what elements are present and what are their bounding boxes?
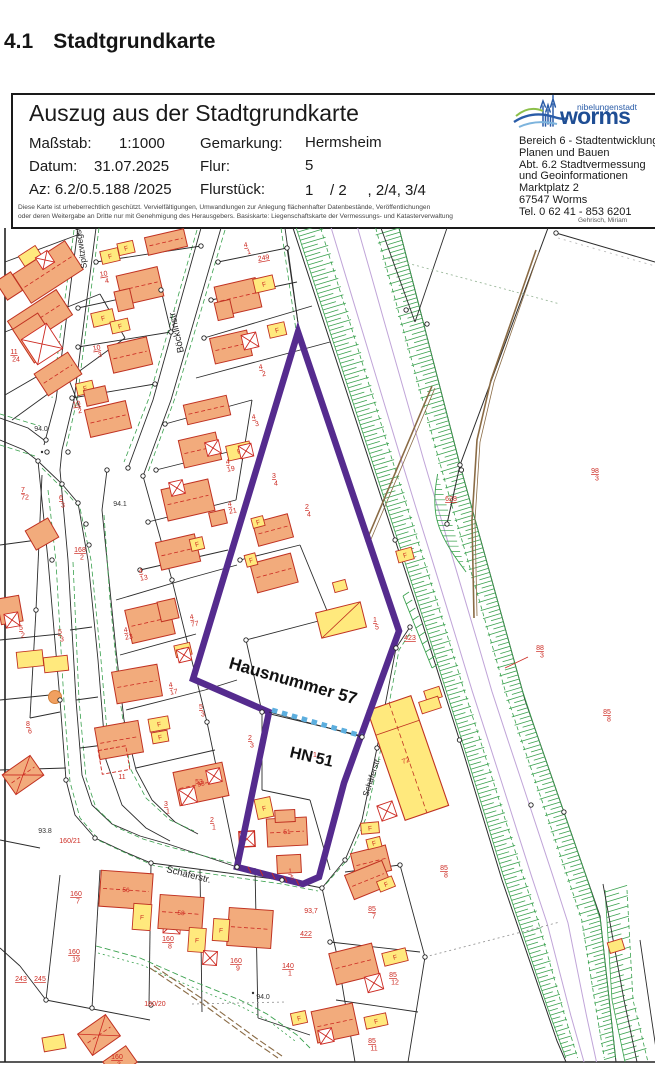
svg-text:160: 160 (162, 936, 174, 943)
svg-text:3: 3 (540, 653, 544, 660)
svg-text:8: 8 (26, 721, 30, 728)
svg-text:3: 3 (60, 637, 64, 644)
svg-text:3: 3 (272, 473, 276, 480)
svg-text:77: 77 (191, 620, 200, 628)
svg-text:160: 160 (230, 958, 242, 965)
svg-text:1: 1 (212, 825, 216, 832)
svg-text:160: 160 (70, 891, 82, 898)
svg-text:23: 23 (125, 633, 134, 641)
svg-text:1: 1 (246, 249, 251, 257)
svg-text:4: 4 (123, 627, 128, 635)
svg-text:3: 3 (164, 801, 168, 808)
svg-text:6: 6 (59, 495, 63, 502)
svg-text:9: 9 (236, 966, 240, 973)
svg-text:4: 4 (243, 242, 248, 250)
svg-text:249: 249 (257, 254, 270, 263)
svg-text:21: 21 (229, 507, 238, 515)
svg-text:160/21: 160/21 (59, 838, 81, 845)
svg-text:4: 4 (189, 614, 194, 622)
svg-text:3: 3 (201, 712, 205, 719)
svg-text:3: 3 (254, 421, 259, 429)
svg-text:11: 11 (370, 1046, 377, 1053)
svg-text:72: 72 (21, 495, 29, 502)
svg-text:F: F (368, 825, 373, 832)
svg-text:628: 628 (445, 496, 457, 503)
svg-text:4: 4 (168, 682, 173, 690)
svg-text:93.8: 93.8 (38, 828, 52, 835)
svg-text:140: 140 (282, 963, 294, 970)
svg-text:4: 4 (251, 414, 256, 422)
svg-text:8: 8 (607, 717, 611, 724)
svg-text:160: 160 (111, 1054, 123, 1061)
svg-text:4: 4 (104, 278, 109, 286)
svg-text:85: 85 (368, 906, 376, 913)
svg-text:56: 56 (122, 887, 130, 895)
svg-text:5: 5 (199, 704, 203, 711)
svg-text:51: 51 (283, 829, 291, 836)
svg-text:2: 2 (77, 408, 82, 416)
svg-text:3: 3 (595, 476, 599, 483)
svg-text:1: 1 (373, 617, 377, 624)
svg-text:98: 98 (591, 468, 599, 475)
svg-text:85: 85 (368, 1038, 376, 1045)
svg-text:19: 19 (72, 957, 80, 964)
svg-text:53: 53 (195, 779, 203, 786)
svg-text:6: 6 (28, 729, 32, 736)
svg-text:3: 3 (250, 743, 254, 750)
svg-text:85: 85 (389, 972, 397, 979)
svg-text:F: F (219, 927, 223, 934)
svg-text:2: 2 (80, 555, 84, 562)
svg-text:85: 85 (603, 709, 611, 716)
svg-text:1: 1 (166, 809, 170, 816)
svg-text:F: F (140, 914, 144, 921)
svg-text:160/20: 160/20 (144, 1001, 166, 1008)
svg-text:245: 245 (34, 976, 46, 983)
svg-text:58: 58 (177, 910, 185, 918)
svg-text:8: 8 (168, 944, 172, 951)
svg-text:93,7: 93,7 (304, 908, 318, 915)
svg-text:13: 13 (140, 574, 149, 582)
svg-text:5: 5 (58, 629, 62, 636)
svg-text:2: 2 (248, 735, 252, 742)
svg-text:94.0: 94.0 (256, 994, 270, 1001)
svg-text:168: 168 (74, 547, 86, 554)
svg-text:243: 243 (15, 976, 27, 983)
svg-text:85: 85 (440, 865, 448, 872)
svg-text:F: F (195, 937, 199, 944)
svg-text:422: 422 (300, 931, 312, 938)
svg-text:88: 88 (536, 645, 544, 652)
svg-text:2: 2 (21, 633, 25, 640)
svg-text:4: 4 (307, 512, 311, 519)
svg-text:7: 7 (21, 487, 25, 494)
svg-text:4: 4 (227, 501, 232, 509)
svg-text:17: 17 (170, 688, 179, 696)
svg-text:94.1: 94.1 (113, 501, 127, 508)
svg-text:7: 7 (76, 899, 80, 906)
svg-text:7: 7 (372, 914, 376, 921)
svg-text:5: 5 (375, 625, 379, 632)
svg-text:2: 2 (261, 371, 266, 379)
svg-text:24: 24 (12, 357, 20, 364)
svg-text:11: 11 (10, 349, 17, 356)
svg-text:4: 4 (274, 481, 278, 488)
svg-text:2: 2 (210, 817, 214, 824)
svg-text:worms: worms (559, 103, 630, 129)
svg-text:1: 1 (313, 752, 317, 759)
svg-text:1: 1 (288, 971, 292, 978)
svg-text:423: 423 (404, 635, 416, 642)
svg-text:94.0: 94.0 (34, 426, 48, 433)
svg-text:12: 12 (391, 980, 399, 987)
svg-text:HN 51: HN 51 (288, 744, 335, 771)
svg-text:3: 3 (61, 503, 65, 510)
svg-text:19: 19 (227, 465, 236, 473)
svg-text:8: 8 (444, 873, 448, 880)
svg-text:3: 3 (97, 352, 102, 360)
svg-text:4: 4 (138, 568, 143, 576)
svg-text:2: 2 (305, 504, 309, 511)
svg-text:4: 4 (258, 364, 263, 372)
svg-text:11: 11 (118, 774, 125, 781)
svg-text:3: 3 (117, 1062, 121, 1065)
svg-text:160: 160 (68, 949, 80, 956)
svg-text:Schäferstr.: Schäferstr. (360, 756, 382, 798)
svg-text:5: 5 (19, 625, 23, 632)
